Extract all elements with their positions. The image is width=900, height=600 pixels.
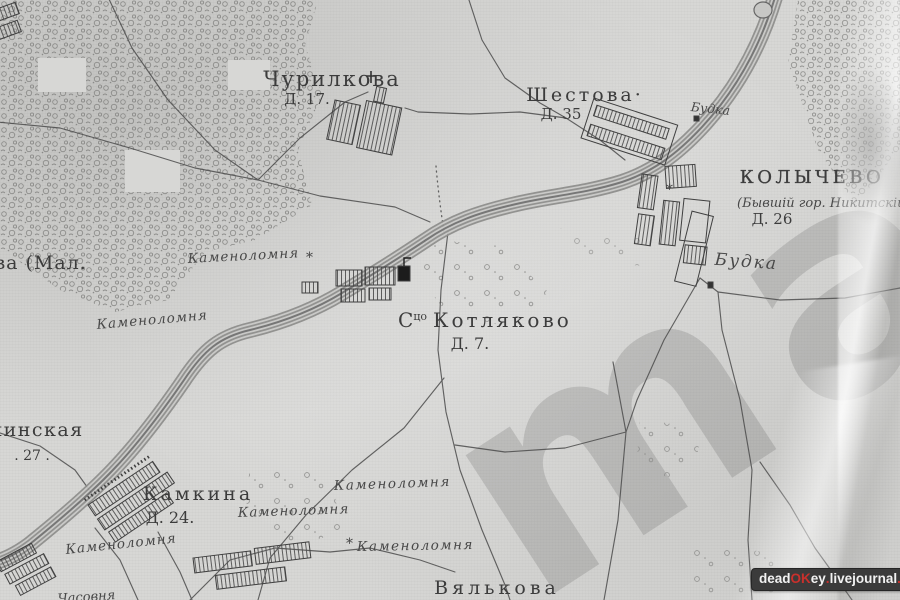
label-vyalkova: Вялькова: [434, 577, 560, 599]
village-vyalkova: [193, 542, 314, 592]
label-kamkina: Камкина: [143, 483, 253, 505]
label-budka-south: Будка: [713, 250, 779, 274]
label-kotlyakovo: СцоКотляково: [398, 308, 572, 332]
label-shestova-households: Д. 35: [541, 105, 582, 123]
label-kolychevo-subtitle: (Бывшій гор. Никитскій: [737, 196, 900, 211]
label-kotlyakovo-households: Д. 7.: [451, 334, 489, 353]
label-kolychevo: КОЛЫЧЕВО: [740, 167, 884, 188]
svg-text:*: *: [306, 250, 313, 266]
label-ova-mal: ова (Мал.: [0, 252, 87, 274]
label-kolychevo-households: Д. 26: [752, 210, 793, 228]
village-kolychevo: [634, 164, 713, 288]
label-quarry-2: Каменоломня: [95, 307, 208, 333]
badge-segment: ey: [811, 571, 826, 587]
livejournal-watermark-badge: deadOKey.livejournal.com: [751, 568, 900, 591]
svg-text:*: *: [666, 182, 673, 198]
label-chasovnya: Часовня: [57, 588, 116, 600]
scanned-map-image: map: [0, 0, 900, 600]
label-kamkina-households: Д. 24.: [146, 508, 195, 527]
map-engraving-layer: * * * Чурилкова Д. 17. Шестова· Д. 35 Бу…: [0, 0, 900, 600]
label-shestova: Шестова·: [526, 84, 644, 106]
svg-text:*: *: [346, 536, 353, 552]
black-building: [398, 266, 410, 281]
badge-segment: OK: [791, 571, 811, 587]
label-linskaya: линская: [0, 419, 84, 441]
label-quarry-5: Каменоломня: [333, 474, 451, 494]
badge-segment: livejournal: [830, 571, 898, 587]
badge-segment: dead: [759, 571, 791, 587]
budka-building: [708, 282, 713, 288]
budka-building: [694, 116, 699, 121]
label-budka-north: Будка: [689, 99, 731, 118]
label-churilkova: Чурилкова: [263, 67, 400, 91]
label-quarry-6: Каменоломня: [356, 537, 474, 555]
label-churilkova-households: Д. 17.: [284, 90, 330, 108]
label-linskaya-households: . 27 .: [14, 448, 50, 464]
pond: [754, 2, 772, 18]
